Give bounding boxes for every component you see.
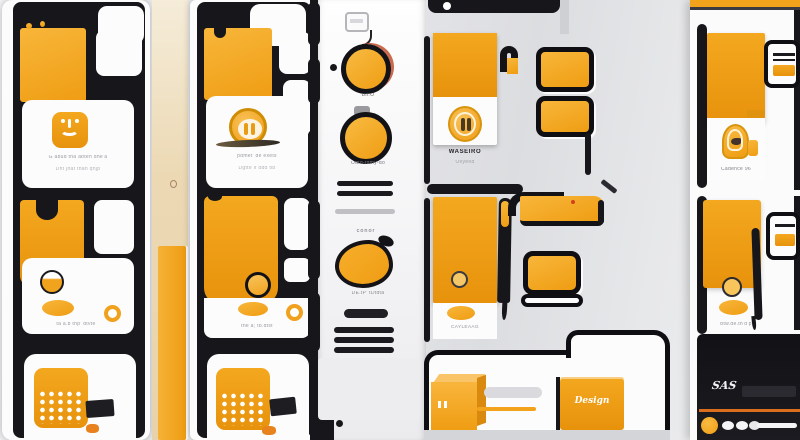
amber-field xyxy=(773,65,795,76)
caption: btw.de.th'd'p xyxy=(700,322,772,328)
pagination-dot[interactable] xyxy=(722,421,734,430)
caption: Cadence 96 xyxy=(700,167,772,173)
pill-blob xyxy=(719,300,748,315)
card-lines-icon[interactable] xyxy=(766,212,800,260)
icon-bird-mark xyxy=(731,138,741,145)
cube-3d-icon[interactable] xyxy=(431,374,491,430)
pagination-dot[interactable] xyxy=(736,421,748,430)
sheet-circle[interactable] xyxy=(722,277,742,297)
design-button-label: Design xyxy=(560,396,624,406)
design-button[interactable]: Design xyxy=(560,377,624,430)
mockup-collage: G abud tha abteh dhe'a Dnt jhat thah qhj… xyxy=(0,0,800,440)
amber-line xyxy=(477,407,536,411)
cube-right xyxy=(477,375,486,426)
progress-track[interactable] xyxy=(757,423,797,428)
guide-line xyxy=(697,24,707,188)
folder-base xyxy=(424,430,670,440)
amber-field xyxy=(775,234,795,246)
icon-side-tab xyxy=(748,140,758,156)
line xyxy=(773,53,795,56)
accent-line xyxy=(699,409,800,412)
arch-bird-icon[interactable] xyxy=(722,124,749,159)
header-line xyxy=(690,7,800,10)
cube-mark xyxy=(444,401,447,408)
line xyxy=(773,59,795,61)
player-bar xyxy=(742,386,796,397)
line xyxy=(775,224,795,227)
card-lines-icon[interactable] xyxy=(764,40,800,88)
right-panel: Cadence 96 btw.de.th'd'p SAS xyxy=(0,0,800,440)
progress-bar xyxy=(484,387,542,398)
pagination-dot-active[interactable] xyxy=(701,417,718,434)
orange-header xyxy=(690,0,800,7)
cube-mark xyxy=(438,401,441,408)
folder-tab-join xyxy=(574,352,664,362)
player-badge: SAS xyxy=(711,379,745,392)
edge-line xyxy=(794,10,800,190)
